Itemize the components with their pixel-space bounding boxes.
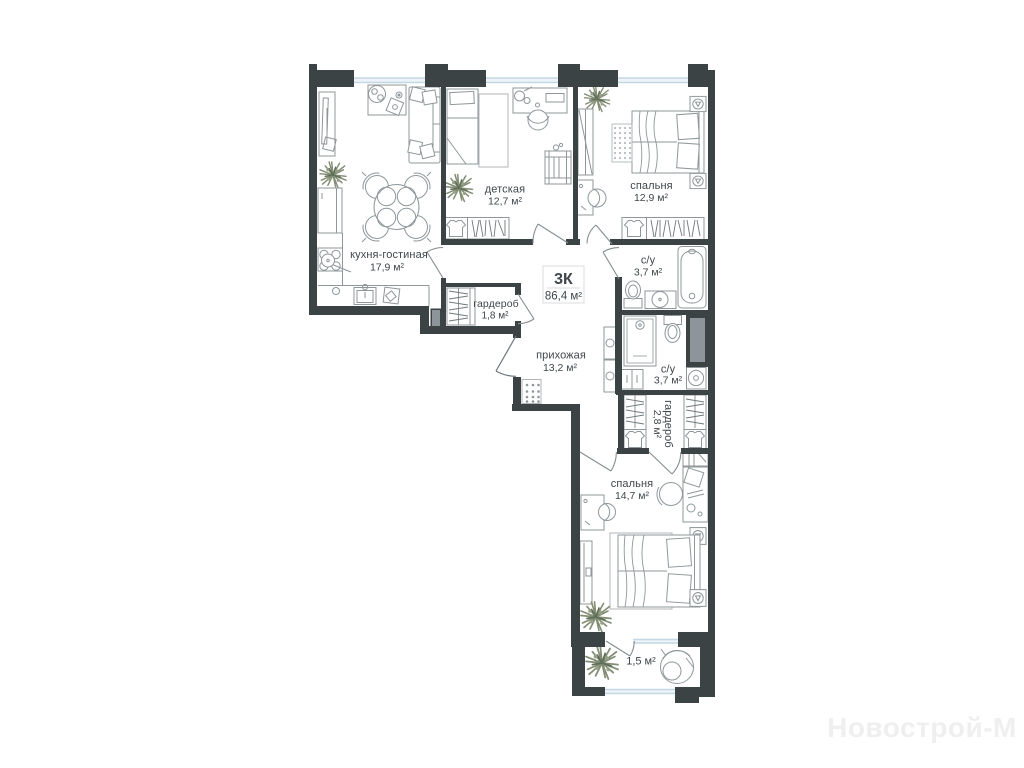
svg-text:Новострой-М: Новострой-М <box>827 712 1017 743</box>
svg-text:1,8 м²: 1,8 м² <box>482 311 510 322</box>
svg-text:спальня: спальня <box>630 180 672 192</box>
svg-text:прихожая: прихожая <box>536 350 586 362</box>
svg-text:86,4 м²: 86,4 м² <box>545 291 582 303</box>
svg-text:2,8 м²: 2,8 м² <box>651 410 663 439</box>
svg-text:12,7 м²: 12,7 м² <box>488 196 523 208</box>
svg-text:детская: детская <box>485 184 525 196</box>
svg-text:кухня-гостиная: кухня-гостиная <box>350 249 428 261</box>
svg-text:с/у: с/у <box>641 255 656 267</box>
svg-text:3К: 3К <box>554 271 573 288</box>
svg-text:12,9 м²: 12,9 м² <box>634 192 669 204</box>
svg-text:14,7 м²: 14,7 м² <box>615 490 650 502</box>
svg-text:17,9 м²: 17,9 м² <box>370 262 405 274</box>
svg-text:спальня: спальня <box>611 478 653 490</box>
svg-text:3,7 м²: 3,7 м² <box>634 267 663 279</box>
svg-text:13,2 м²: 13,2 м² <box>543 362 578 374</box>
svg-text:1,5 м²: 1,5 м² <box>626 656 656 668</box>
svg-text:3,7 м²: 3,7 м² <box>654 375 683 387</box>
svg-text:гардероб: гардероб <box>473 298 519 310</box>
